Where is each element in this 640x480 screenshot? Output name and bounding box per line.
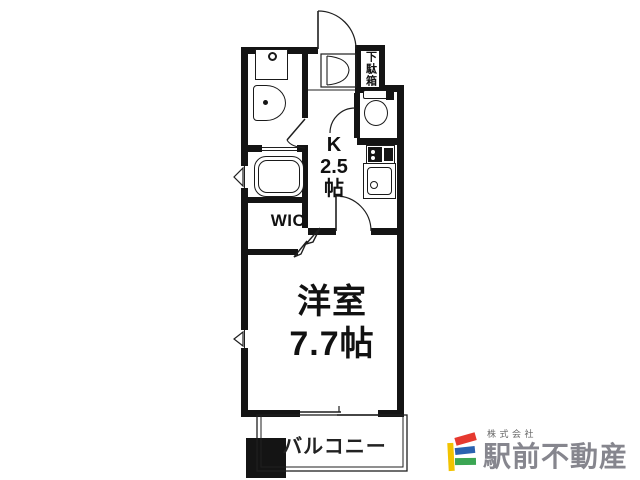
washing-machine-faucet-icon [268,52,277,61]
kitchen-sink-drain-icon [370,181,378,189]
toilet-flush-button [386,90,394,100]
washroom-door-leaf [287,119,305,140]
stove-burner-dot-2 [371,156,375,160]
wic-door-fold-1 [294,241,307,257]
shoe-cabinet-box: 下駄箱 [361,51,379,87]
toilet-bowl [364,100,388,126]
company-name-label: 駅前不動産 [483,435,628,475]
floor-plan-page: 下駄箱 K 2.5 帖 WIC 洋室 7.7帖 バルコニー 株式会社 駅前不動産 [0,0,640,480]
wic-label: WIC [264,211,312,231]
logo-green-bar-icon [455,458,476,465]
entrance-door-arc [318,11,356,49]
kitchen-label: K 2.5 帖 [312,134,356,200]
stove-burner-block [368,147,382,162]
hall-closet-door-top [327,56,349,70]
main-room-label: 洋室 7.7帖 [252,282,412,366]
bath-window-marker [234,168,243,186]
plan-linework [0,0,640,480]
washroom-door-arc [287,140,305,148]
kitchen-door-arc [336,196,371,231]
stove-burner-dot-1 [371,150,375,154]
shoe-cabinet-label: 下駄箱 [365,51,376,87]
hall-closet-door-bottom [327,70,349,85]
stove-grill [384,148,393,161]
washbasin-drain-icon [263,100,268,105]
balcony-label: バルコニー [262,430,407,459]
bathtub-inner-line [258,160,300,193]
main-window-marker [234,332,243,346]
toilet-door-arc [330,108,355,133]
